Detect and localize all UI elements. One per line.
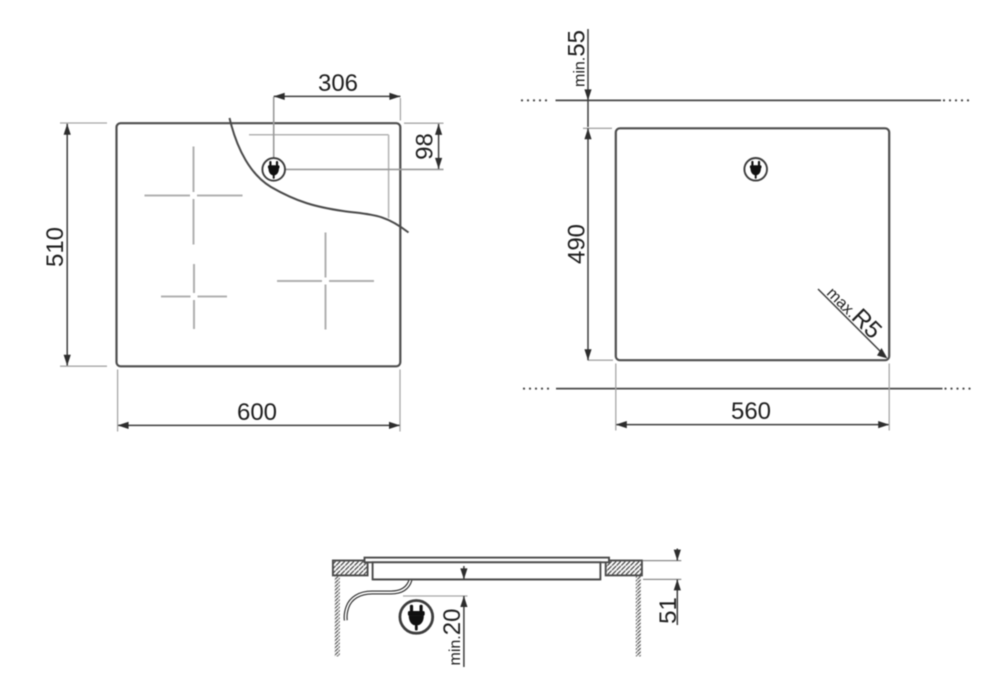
svg-text:306: 306	[318, 70, 358, 97]
svg-text:min.20: min.20	[439, 609, 466, 666]
svg-text:98: 98	[412, 133, 439, 160]
svg-text:min.55: min.55	[564, 30, 591, 87]
svg-text:490: 490	[564, 224, 591, 264]
svg-text:600: 600	[237, 399, 277, 426]
svg-text:560: 560	[731, 398, 771, 425]
svg-text:510: 510	[42, 227, 69, 267]
svg-text:51: 51	[655, 597, 682, 624]
